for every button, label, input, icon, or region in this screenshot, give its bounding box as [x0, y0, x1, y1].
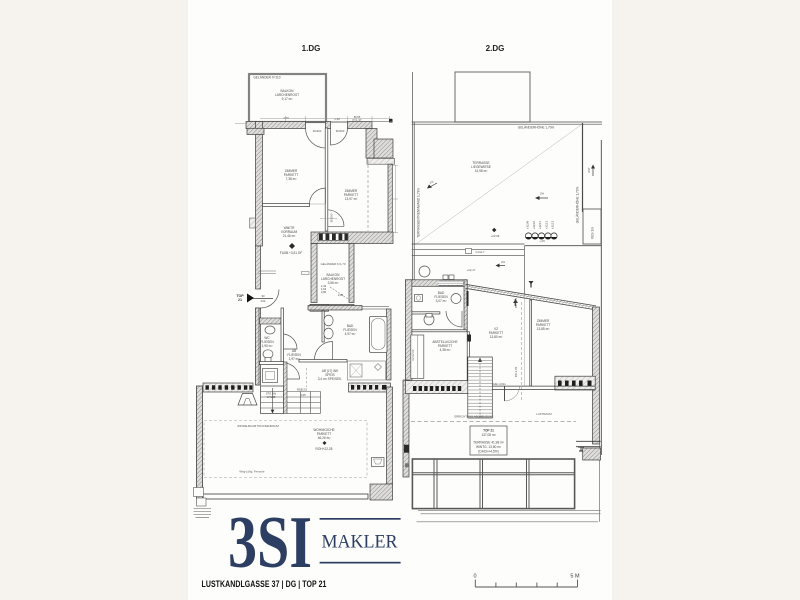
svg-text:13,97 m²: 13,97 m²: [345, 197, 358, 201]
svg-text:RGB 2,5: RGB 2,5: [297, 388, 308, 392]
svg-text:1,97 m²: 1,97 m²: [289, 357, 300, 361]
svg-text:7,38 m²: 7,38 m²: [286, 177, 297, 181]
svg-text:+22,10: +22,10: [532, 220, 536, 229]
svg-text:2.DG: 2.DG: [486, 44, 505, 53]
svg-text:+22,17: +22,17: [467, 268, 476, 272]
svg-text:2,05: 2,05: [338, 293, 344, 297]
svg-text:BO 2,05: BO 2,05: [514, 297, 518, 308]
svg-text:4,38 m²: 4,38 m²: [440, 348, 451, 352]
svg-text:2%: 2%: [501, 260, 506, 264]
svg-text:13,85 m²: 13,85 m²: [537, 327, 550, 331]
svg-text:1.DG: 1.DG: [302, 44, 321, 53]
svg-text:21: 21: [238, 298, 242, 302]
svg-text:90: 90: [261, 294, 265, 298]
svg-text:90/200: 90/200: [336, 129, 345, 133]
svg-text:3,07 m²: 3,07 m²: [436, 299, 447, 303]
svg-text:80/200: 80/200: [330, 213, 334, 222]
svg-text:LUFTRAUM: LUFTRAUM: [536, 412, 552, 416]
svg-text:90/200: 90/200: [313, 129, 322, 133]
svg-text:1,90 m²: 1,90 m²: [262, 344, 273, 348]
svg-text:BO 2,05: BO 2,05: [514, 366, 518, 377]
svg-text:13,80 m²: 13,80 m²: [490, 335, 503, 339]
svg-text:1,38: 1,38: [334, 117, 340, 121]
svg-text:STG 18x: STG 18x: [266, 392, 277, 396]
svg-text:GELÄNDER h=110: GELÄNDER h=110: [253, 76, 280, 80]
svg-text:FUßB.+3,51 DF: FUßB.+3,51 DF: [280, 251, 302, 255]
svg-text:ERRICHTUNG ABGRENZUNG: ERRICHTUNG ABGRENZUNG: [454, 415, 493, 419]
svg-text:TOP 21: TOP 21: [483, 429, 494, 433]
svg-text:Whg-Lüftg. Fernrohr: Whg-Lüftg. Fernrohr: [239, 470, 264, 474]
svg-text:+22,12: +22,12: [544, 220, 548, 229]
svg-text:GELÄNDERHÖHE 1,73m: GELÄNDERHÖHE 1,73m: [576, 186, 580, 223]
svg-text:TERRASSENTRENNWAND 1,73m: TERRASSENTRENNWAND 1,73m: [417, 188, 421, 238]
svg-text:WINTG. 13,80 m²: WINTG. 13,80 m²: [476, 445, 501, 449]
svg-text:GELÄNDER h=1,70: GELÄNDER h=1,70: [321, 262, 346, 266]
svg-text:MAKLER: MAKLER: [322, 532, 398, 553]
svg-text:2%: 2%: [540, 192, 545, 196]
svg-text:17,5/28: 17,5/28: [267, 395, 276, 399]
svg-text:ROH+22,28: ROH+22,28: [316, 447, 333, 451]
svg-text:2,90: 2,90: [321, 290, 327, 294]
svg-text:46,26 m²: 46,26 m²: [318, 436, 331, 440]
svg-text:200: 200: [261, 299, 266, 303]
svg-text:+22,08: +22,08: [491, 234, 500, 238]
svg-text:+22,11: +22,11: [538, 221, 542, 229]
svg-text:WINKELBAUM TROCKENRAUM: WINKELBAUM TROCKENRAUM: [237, 424, 279, 428]
svg-text:41,98 m²: 41,98 m²: [475, 169, 488, 173]
svg-text:+,06: +,06: [539, 239, 545, 243]
svg-text:AST: AST: [587, 167, 591, 173]
svg-text:9,17 m²: 9,17 m²: [282, 97, 293, 101]
svg-text:+22,09: +22,09: [526, 220, 530, 229]
svg-text:[DACH+4,5%]: [DACH+4,5%]: [479, 450, 499, 454]
svg-text:+22,13: +22,13: [551, 220, 555, 229]
svg-text:5 M: 5 M: [570, 574, 580, 580]
svg-text:KES 1m: KES 1m: [591, 227, 595, 239]
svg-text:2,50: 2,50: [283, 116, 289, 120]
svg-text:TERRASSE 41,98 m²: TERRASSE 41,98 m²: [473, 441, 504, 445]
svg-text:0: 0: [473, 574, 476, 580]
svg-text:3SI: 3SI: [228, 502, 312, 584]
svg-text:GULLY: GULLY: [476, 250, 485, 254]
svg-text:3,56 m²: 3,56 m²: [328, 281, 339, 285]
svg-text:02 02 02: 02 02 02: [411, 349, 415, 360]
svg-text:3,4 m² SPEISEK.: 3,4 m² SPEISEK.: [318, 377, 343, 381]
svg-text:LUSTKANDLGASSE 37 | DG | TOP 2: LUSTKANDLGASSE 37 | DG | TOP 21: [202, 579, 327, 589]
svg-text:4,97 m²: 4,97 m²: [345, 332, 356, 336]
svg-text:1,05: 1,05: [300, 393, 306, 397]
svg-text:137,08 m²: 137,08 m²: [481, 433, 495, 437]
svg-text:GELÄNDERHÖHE 1,70m: GELÄNDERHÖHE 1,70m: [518, 126, 555, 130]
svg-text:21,46 m²: 21,46 m²: [283, 234, 296, 238]
